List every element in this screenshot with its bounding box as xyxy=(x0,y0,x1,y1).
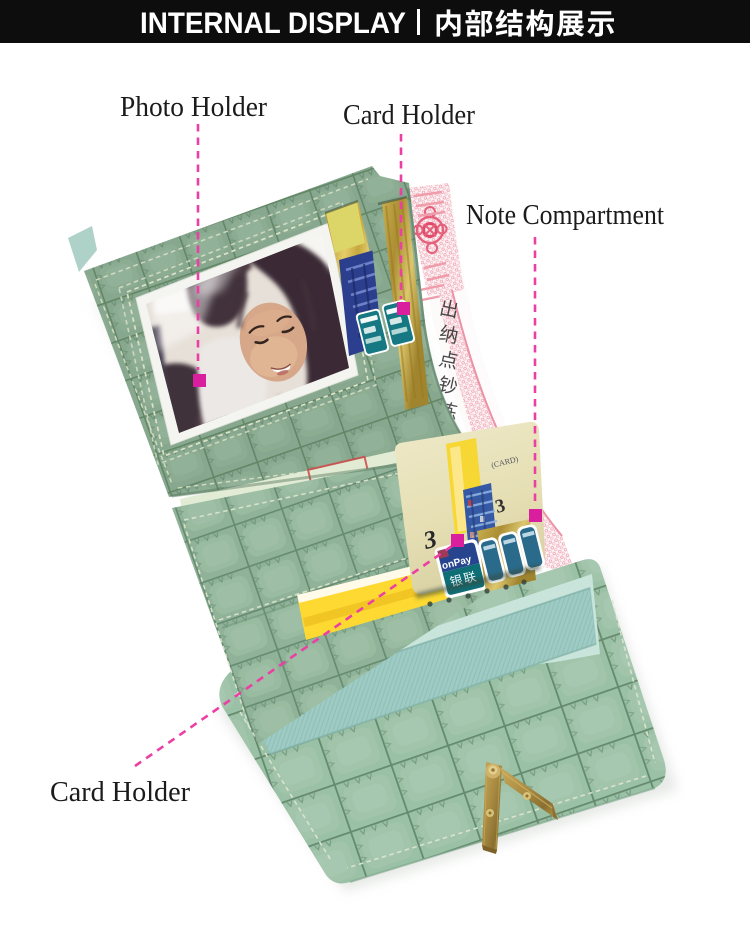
svg-text:INTERNAL DISPLAY: INTERNAL DISPLAY xyxy=(140,7,406,40)
svg-text:Card Holder: Card Holder xyxy=(343,100,476,131)
svg-text:Photo Holder: Photo Holder xyxy=(120,92,268,123)
svg-text:Card Holder: Card Holder xyxy=(50,777,191,808)
svg-text:Note Compartment: Note Compartment xyxy=(466,200,664,231)
